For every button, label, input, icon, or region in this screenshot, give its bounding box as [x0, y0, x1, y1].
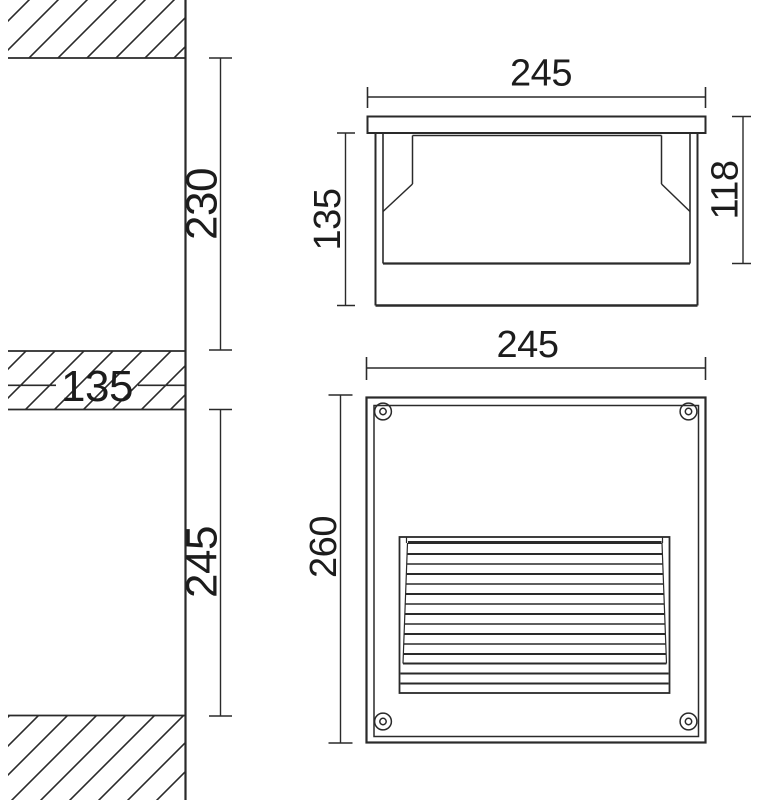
dim-label-118: 118: [705, 160, 747, 219]
side-reflector: [383, 136, 690, 212]
dim-front-height: 260: [303, 395, 353, 743]
dim-side-depth: 118: [705, 117, 752, 264]
dim-label-135-side: 135: [307, 189, 349, 251]
dim-label-245-side: 245: [510, 53, 572, 95]
wall-section-view: 230 135 245: [8, 0, 232, 800]
dim-front-width: 245: [367, 324, 706, 380]
front-view: 245 260: [303, 324, 706, 743]
dim-label-230: 230: [178, 168, 227, 240]
dim-label-245-front: 245: [497, 324, 559, 366]
louver-grill: [401, 538, 669, 684]
technical-drawing: 230 135 245 245: [0, 0, 760, 800]
drawing-canvas: 230 135 245 245: [0, 0, 760, 800]
dim-label-245-wall: 245: [178, 526, 227, 598]
wall-hatch-top: [8, 0, 186, 58]
faceplate-inner: [374, 406, 699, 737]
dim-side-width: 245: [368, 53, 706, 109]
wall-hatch-bottom: [8, 716, 186, 800]
dim-side-height: 135: [307, 133, 355, 306]
screw-bottom-right: [680, 713, 697, 730]
dim-label-260: 260: [303, 516, 345, 578]
screw-bottom-left: [375, 713, 392, 730]
dim-label-135-wall: 135: [61, 362, 133, 411]
faceplate-outer: [367, 398, 706, 743]
side-cap: [368, 117, 706, 134]
side-view: 245 135 11: [307, 53, 751, 306]
